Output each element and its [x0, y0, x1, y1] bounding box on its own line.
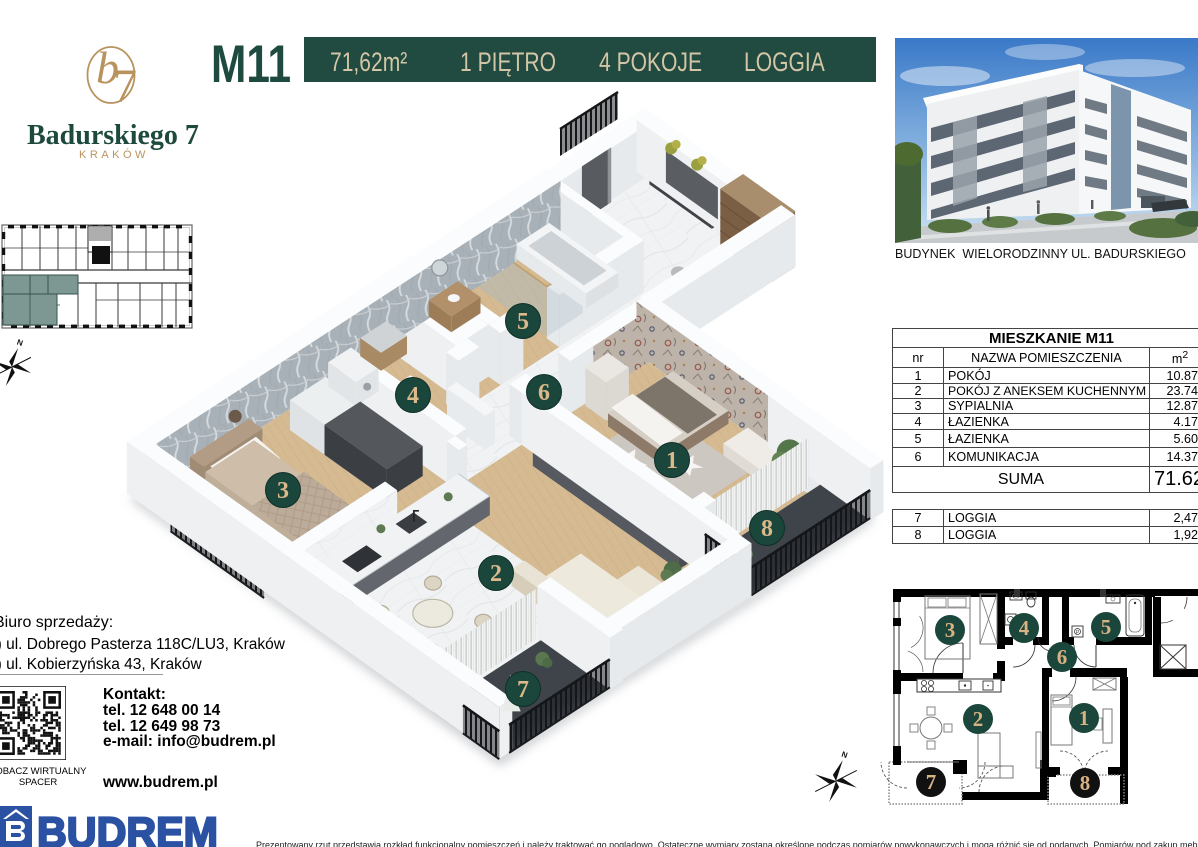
svg-text:BUDREM: BUDREM [37, 809, 218, 847]
svg-text:N: N [16, 338, 24, 348]
